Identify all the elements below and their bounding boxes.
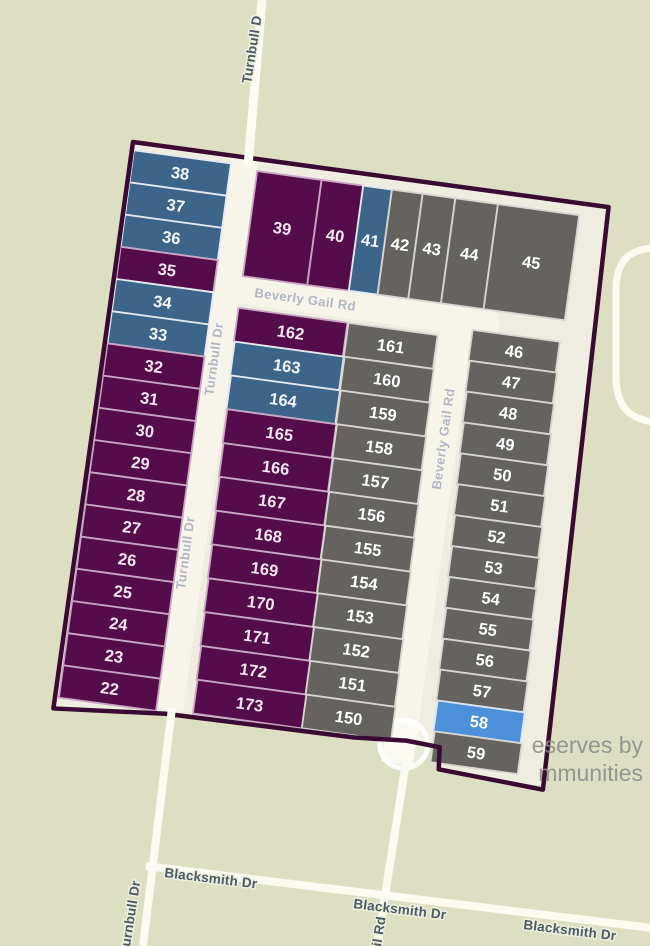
lot-45[interactable]: 45 bbox=[484, 204, 580, 320]
site-map: 3837363534333231302928272625242322394041… bbox=[0, 0, 650, 946]
subdivision: 3837363534333231302928272625242322394041… bbox=[51, 142, 622, 790]
lot-45-parcel[interactable] bbox=[484, 204, 580, 320]
watermark-line-1: eserves by bbox=[532, 732, 644, 758]
lots-layer: 3837363534333231302928272625242322394041… bbox=[57, 150, 594, 774]
watermark-line-2: mmunities bbox=[538, 760, 643, 786]
lot-map-page: 3837363534333231302928272625242322394041… bbox=[0, 0, 650, 946]
